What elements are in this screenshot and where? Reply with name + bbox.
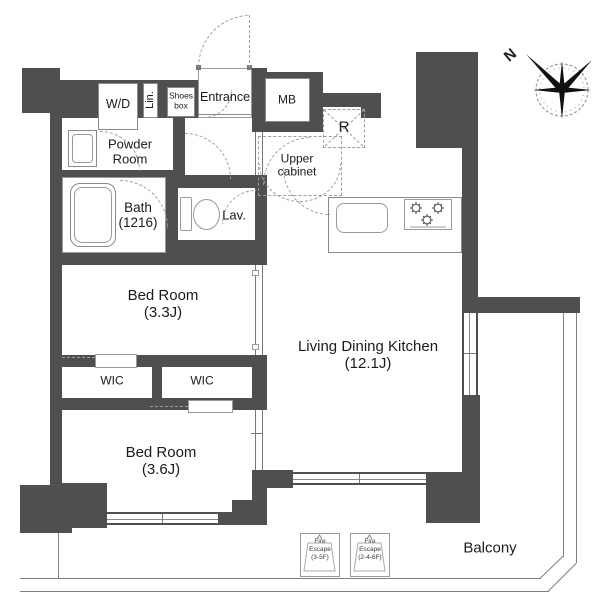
toilet-tank: [180, 197, 192, 231]
bedroom1-ldk-partition: [255, 265, 263, 355]
ldk-bottom-window: [293, 472, 426, 485]
wic-right-label: WIC: [190, 374, 213, 387]
wall-segment: [462, 395, 480, 523]
wall-segment: [252, 470, 267, 525]
wall-segment: [173, 117, 185, 177]
bedroom2-ldk-partition: [255, 410, 263, 470]
balcony-divider: [58, 533, 59, 578]
wall-segment: [175, 240, 267, 253]
meter-box-label: MB: [278, 93, 296, 106]
wall-segment: [62, 483, 107, 528]
wall-segment: [478, 297, 580, 313]
wall-segment: [323, 93, 381, 107]
powder-sink-basin: [72, 134, 93, 163]
fire-escape-label: Fire: [301, 538, 339, 546]
wall-segment: [218, 512, 232, 525]
wall-segment: [426, 472, 462, 523]
wall-segment: [416, 52, 478, 148]
bedroom2-label: Bed Room(3.6J): [126, 445, 197, 479]
bathtub-inner: [74, 187, 112, 243]
balcony-inner-bevel: [540, 556, 564, 579]
balcony-outer-rail: [576, 313, 577, 563]
upper-cabinet-label: Uppercabinet: [278, 153, 317, 180]
balcony-inner-line: [20, 578, 541, 579]
closet-dash: [150, 406, 188, 407]
wic-right-door: [188, 400, 233, 413]
bedroom2-window: [107, 512, 218, 525]
powder-room-label: PowderRoom: [108, 137, 152, 166]
wall-segment: [50, 253, 267, 265]
balcony-inner-rail: [563, 313, 564, 557]
closet-dash: [62, 357, 95, 358]
wall-segment: [50, 398, 267, 410]
wic-left-door: [95, 354, 137, 368]
refrigerator-label: R: [339, 120, 350, 137]
balcony-label: Balcony: [463, 541, 516, 558]
entrance-door-leaf: [249, 15, 250, 68]
kitchen-sink: [336, 203, 388, 233]
partition-handle: [252, 270, 259, 276]
ldk-label: Living Dining Kitchen(12.1J): [298, 339, 438, 373]
bath-label: Bath(1216): [118, 200, 157, 230]
fire-escape-hatch-1: FireEscape(3-5F): [300, 533, 340, 577]
partition-handle: [252, 344, 259, 350]
stove-burner-icon: [404, 199, 452, 230]
partition-tick: [251, 433, 262, 434]
fire-escape-label: Fire: [351, 538, 389, 546]
ldk-side-window: [462, 313, 478, 395]
shoes-box-label: Shoesbox: [169, 91, 193, 110]
wall-segment: [62, 170, 173, 177]
wall-segment: [232, 500, 252, 525]
entrance-label: Entrance: [200, 90, 250, 104]
compass-rose-icon: [500, 35, 616, 145]
wall-segment: [50, 112, 62, 485]
wall-segment: [462, 143, 478, 313]
wall-segment: [152, 367, 162, 398]
washer-dryer-label: W/D: [106, 97, 130, 111]
floor-plan: FireEscape(3-5F) FireEscape(2-4-6F) N W/…: [0, 0, 616, 600]
bedroom1-label: Bed Room(3.3J): [128, 288, 199, 322]
wall-segment: [252, 122, 323, 132]
wic-left-label: WIC: [100, 374, 123, 387]
hall-door-arc: [185, 133, 231, 179]
balcony-outer-line: [20, 591, 549, 592]
linen-label: Lin.: [144, 91, 156, 109]
wall-segment: [22, 68, 60, 113]
entrance-door-arc: [198, 15, 250, 68]
fire-escape-hatch-2: FireEscape(2-4-6F): [350, 533, 390, 577]
lav-label: Lav.: [222, 209, 246, 224]
toilet-bowl: [193, 199, 220, 230]
